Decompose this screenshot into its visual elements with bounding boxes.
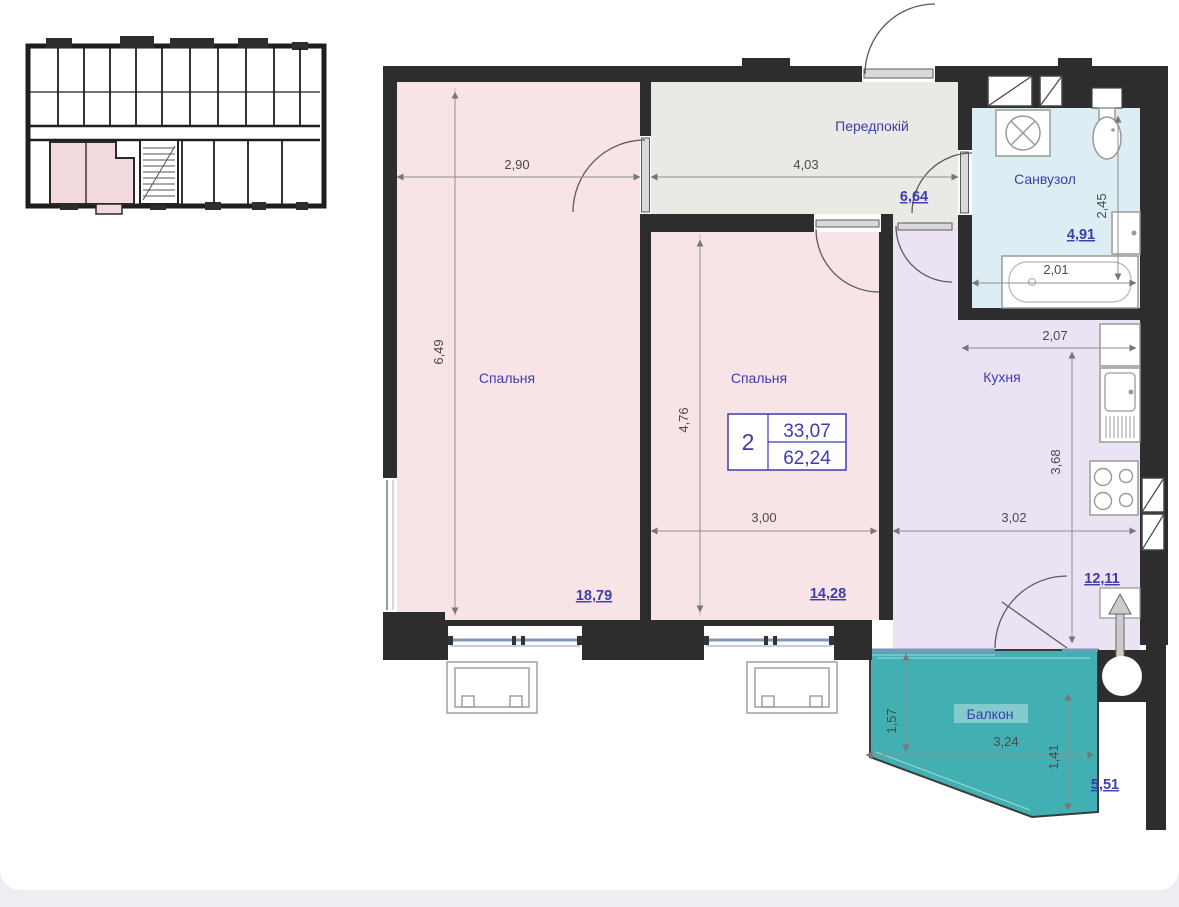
window-box-left [447,662,537,713]
minimap-stairwell [140,140,178,204]
dim-bedroom2-height: 4,76 [676,407,691,432]
dim-balcony-left-height: 1,57 [884,708,899,733]
balcony-area-link[interactable]: 5,51 [1091,777,1119,793]
kitchen-label: Кухня [983,369,1020,385]
washing-machine-icon [996,110,1050,156]
dim-bathroom-width: 2,01 [1043,262,1068,277]
dim-bedroom2-width: 3,00 [751,510,776,525]
balcony-floor [870,650,1098,817]
bedroom2-area-link[interactable]: 14,28 [810,586,846,602]
balcony-label: Балкон [967,706,1014,722]
entrance-door [862,4,935,82]
window-south-bedroom1 [448,626,582,660]
dim-kitchen-height: 3,68 [1048,449,1063,474]
bathroom-area-link[interactable]: 4,91 [1067,227,1095,243]
dim-hallway-width: 4,03 [793,157,818,172]
living-area-value: 33,07 [783,421,831,442]
bathroom-label: Санвузол [1014,171,1076,187]
dim-balcony-width: 3,24 [993,734,1018,749]
bathroom-sink-icon [1112,212,1140,254]
total-area-value: 62,24 [783,448,831,469]
apartment-info-box: 2 33,07 62,24 [728,414,846,470]
stove-icon [1090,461,1138,515]
rooms-count-value: 2 [742,429,755,455]
bedroom2-label: Спальня [731,370,787,386]
dim-balcony-right-height: 1,41 [1046,744,1061,769]
dim-bedroom1-width: 2,90 [504,157,529,172]
dim-kitchen-width: 3,02 [1001,510,1026,525]
bedroom1-area-link[interactable]: 18,79 [576,588,612,604]
hallway-area-link[interactable]: 6,64 [900,189,928,205]
dim-bathroom-height: 2,45 [1094,193,1109,218]
building-overview-minimap [28,36,324,214]
window-west-bedroom1 [383,478,397,612]
dim-kitchen-top-width: 2,07 [1042,328,1067,343]
kitchen-counter [1100,324,1140,366]
window-south-bedroom2 [704,626,834,660]
apartment-plan: 2,90 4,03 6,49 4,76 3,00 3,02 3,68 2,07 … [383,4,1168,830]
window-box-right [747,662,837,713]
dim-bedroom1-height: 6,49 [431,339,446,364]
bedroom1-label: Спальня [479,370,535,386]
kitchen-area-link[interactable]: 12,11 [1084,571,1120,587]
kitchen-sink-icon [1100,368,1140,442]
hallway-label: Передпокій [835,118,909,134]
floorplan-canvas: 2,90 4,03 6,49 4,76 3,00 3,02 3,68 2,07 … [0,0,1179,907]
column-icon [1102,656,1142,696]
